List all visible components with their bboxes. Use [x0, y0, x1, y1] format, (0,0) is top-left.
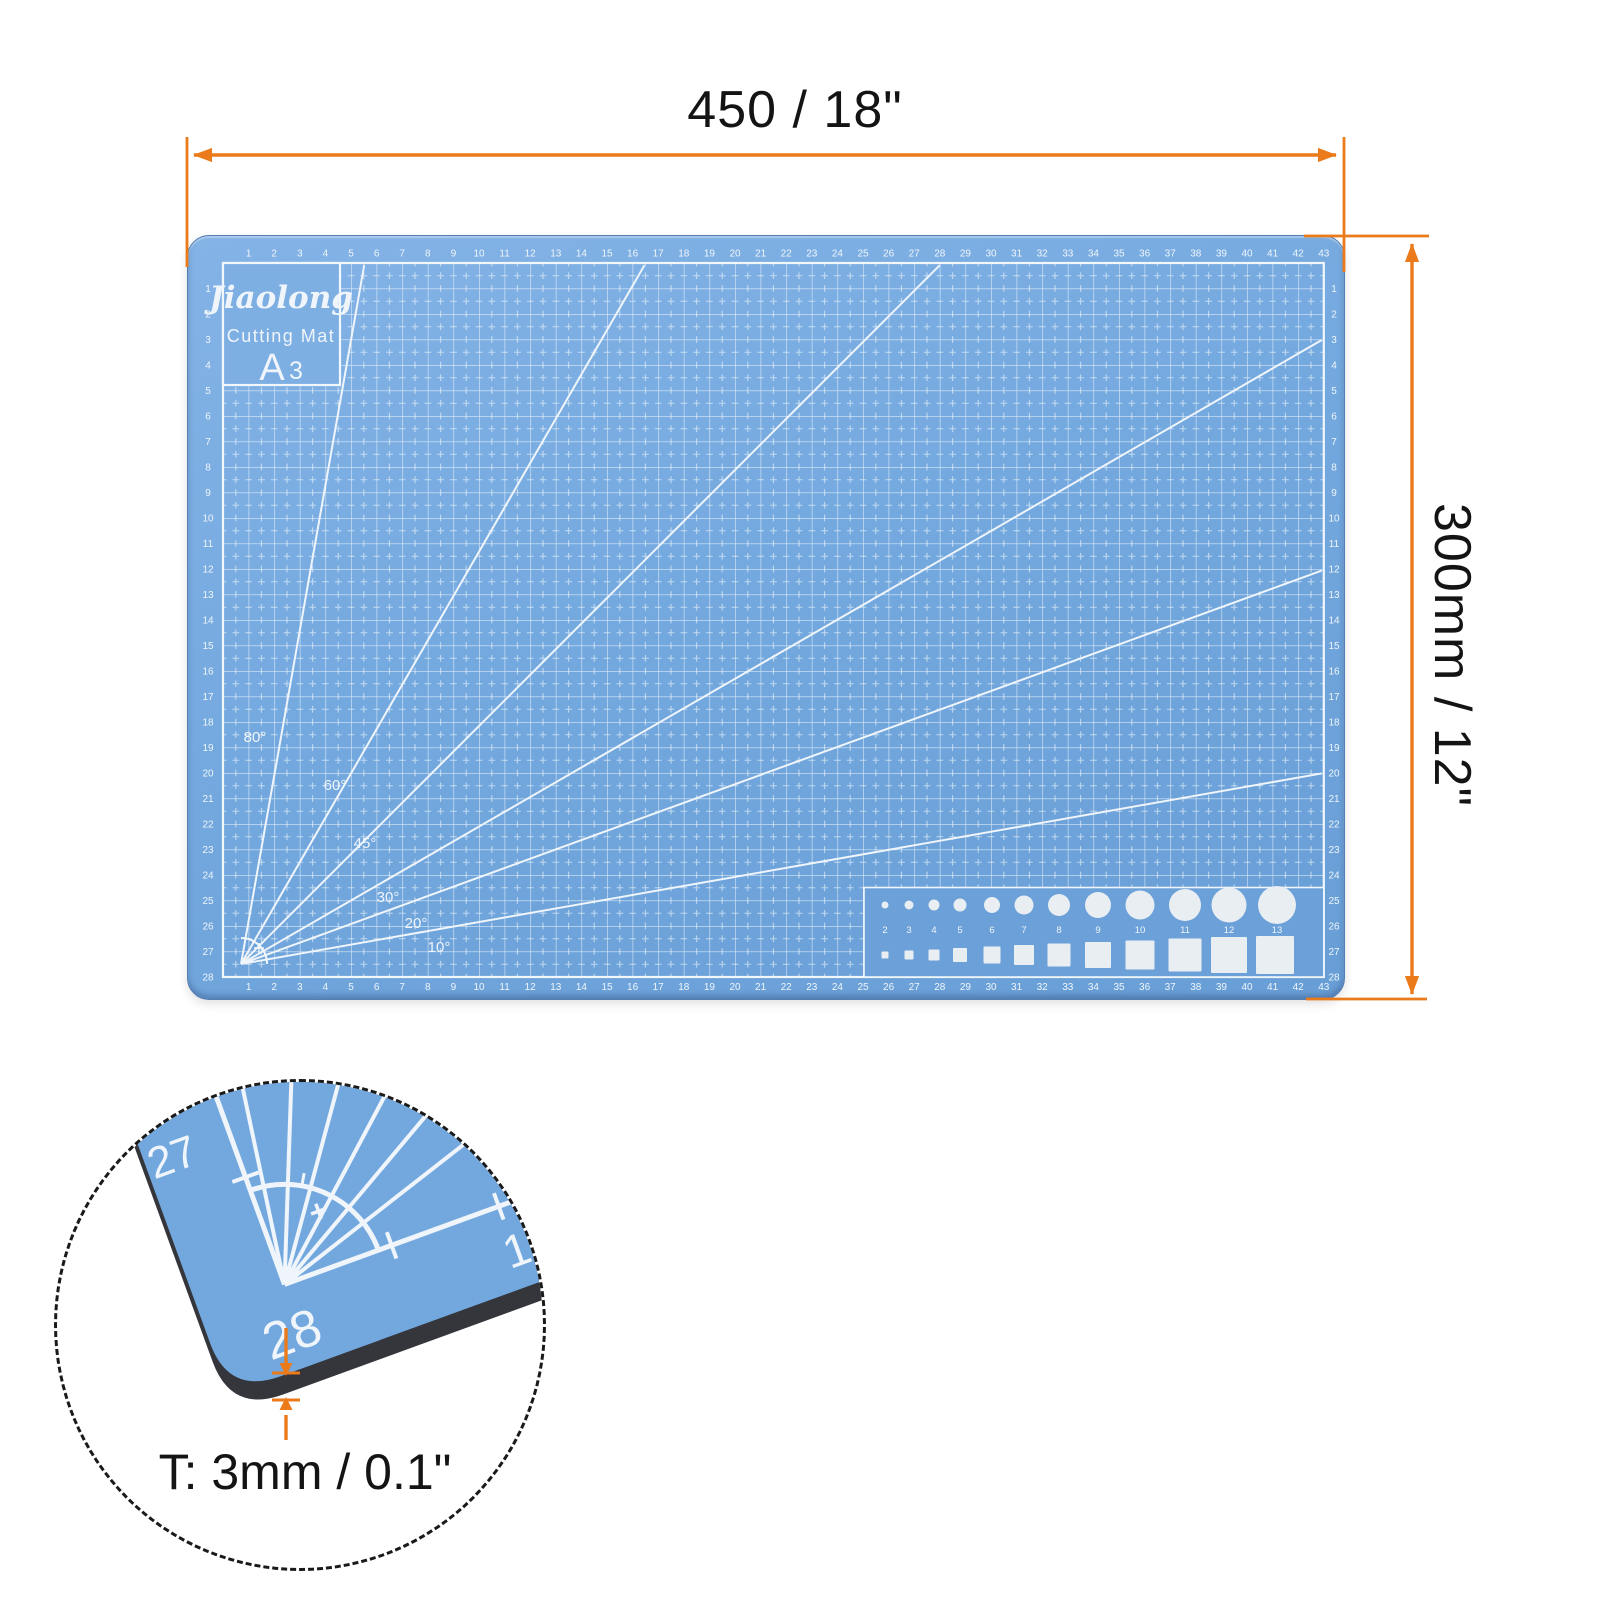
angle-label-30: 30° — [377, 889, 400, 906]
template-square-8 — [1048, 944, 1071, 967]
ruler-number-left: 6 — [205, 412, 211, 423]
left-ruler: 1234567891011121314151617181920212223242… — [202, 284, 214, 984]
ruler-number-top: 30 — [985, 249, 997, 260]
ruler-number-bottom: 5 — [348, 982, 354, 993]
detail-circle: 2627281 T: 3mm / 0.1" — [54, 1079, 546, 1571]
bottom-ruler: 1234567891011121314151617181920212223242… — [246, 982, 1330, 993]
ruler-number-bottom: 30 — [985, 982, 997, 993]
ruler-number-top: 4 — [323, 249, 329, 260]
template-square-2 — [882, 952, 889, 959]
ruler-number-left: 23 — [202, 845, 214, 856]
right-ruler: 1234567891011121314151617181920212223242… — [1328, 284, 1340, 984]
ruler-number-top: 24 — [832, 249, 844, 260]
template-square-6 — [984, 947, 1001, 964]
ruler-number-left: 12 — [202, 565, 214, 576]
ruler-number-bottom: 17 — [653, 982, 665, 993]
ruler-number-right: 19 — [1328, 743, 1340, 754]
ruler-number-bottom: 6 — [374, 982, 380, 993]
ruler-number-top: 15 — [601, 249, 613, 260]
ruler-number-left: 26 — [202, 922, 214, 933]
ruler-number-left: 13 — [202, 590, 214, 601]
ruler-number-bottom: 31 — [1011, 982, 1023, 993]
ruler-number-left: 14 — [202, 616, 214, 627]
product-name-text: Cutting Mat — [227, 326, 336, 346]
angle-label-45: 45° — [354, 835, 377, 852]
ruler-number-left: 10 — [202, 514, 214, 525]
ruler-number-right: 1 — [1331, 284, 1337, 295]
ruler-number-left: 3 — [205, 335, 211, 346]
template-number-7: 7 — [1021, 925, 1026, 936]
ruler-number-bottom: 10 — [473, 982, 485, 993]
ruler-number-top: 2 — [271, 249, 277, 260]
template-circle-6 — [984, 897, 1000, 913]
brand-text: Jiaolong — [204, 280, 353, 316]
ruler-number-bottom: 43 — [1318, 982, 1330, 993]
top-ruler: 1234567891011121314151617181920212223242… — [246, 249, 1330, 260]
ruler-number-right: 10 — [1328, 514, 1340, 525]
ruler-number-bottom: 22 — [781, 982, 793, 993]
ruler-number-bottom: 4 — [323, 982, 329, 993]
template-number-3: 3 — [906, 925, 911, 936]
ruler-number-top: 3 — [297, 249, 303, 260]
template-circle-3 — [905, 901, 914, 910]
ruler-number-top: 31 — [1011, 249, 1023, 260]
ruler-number-top: 43 — [1318, 249, 1330, 260]
ruler-number-left: 8 — [205, 463, 211, 474]
height-dimension-label: 300mm / 12" — [1422, 503, 1482, 807]
ruler-number-bottom: 7 — [399, 982, 405, 993]
width-dimension-label: 450 / 18" — [687, 80, 902, 140]
ruler-number-bottom: 42 — [1293, 982, 1305, 993]
ruler-number-bottom: 36 — [1139, 982, 1151, 993]
template-number-5: 5 — [957, 925, 962, 936]
ruler-number-right: 15 — [1328, 641, 1340, 652]
ruler-number-top: 36 — [1139, 249, 1151, 260]
ruler-number-right: 21 — [1328, 794, 1340, 805]
template-circle-5 — [954, 899, 967, 912]
ruler-number-right: 6 — [1331, 412, 1337, 423]
ruler-number-bottom: 33 — [1062, 982, 1074, 993]
ruler-number-bottom: 16 — [627, 982, 639, 993]
ruler-number-top: 38 — [1190, 249, 1202, 260]
ruler-number-top: 39 — [1216, 249, 1228, 260]
template-circle-4 — [929, 900, 940, 911]
size-letter-text: A — [259, 347, 285, 389]
ruler-number-top: 20 — [729, 249, 741, 260]
template-number-13: 13 — [1272, 925, 1283, 936]
template-square-4 — [929, 950, 940, 961]
ruler-number-top: 34 — [1088, 249, 1100, 260]
ruler-number-right: 8 — [1331, 463, 1337, 474]
ruler-number-right: 24 — [1328, 871, 1340, 882]
ruler-number-right: 17 — [1328, 692, 1340, 703]
template-square-10 — [1126, 941, 1155, 970]
thickness-label: T: 3mm / 0.1" — [159, 1443, 452, 1501]
ruler-number-top: 13 — [550, 249, 562, 260]
angle-label-60: 60° — [324, 777, 347, 794]
ruler-number-bottom: 21 — [755, 982, 767, 993]
ruler-number-top: 23 — [806, 249, 818, 260]
ruler-number-bottom: 34 — [1088, 982, 1100, 993]
ruler-number-left: 25 — [202, 896, 214, 907]
ruler-number-top: 27 — [909, 249, 921, 260]
ruler-number-bottom: 20 — [729, 982, 741, 993]
ruler-number-right: 18 — [1328, 718, 1340, 729]
ruler-number-bottom: 39 — [1216, 982, 1228, 993]
template-number-11: 11 — [1180, 925, 1190, 936]
template-square-7 — [1014, 945, 1034, 965]
ruler-number-bottom: 37 — [1165, 982, 1177, 993]
ruler-number-top: 1 — [246, 249, 252, 260]
ruler-number-bottom: 40 — [1241, 982, 1253, 993]
ruler-number-right: 7 — [1331, 437, 1337, 448]
angle-label-10: 10° — [428, 939, 451, 956]
ruler-number-right: 16 — [1328, 667, 1340, 678]
ruler-number-bottom: 9 — [451, 982, 457, 993]
ruler-number-right: 25 — [1328, 896, 1340, 907]
ruler-number-bottom: 38 — [1190, 982, 1202, 993]
ruler-number-right: 28 — [1328, 973, 1340, 984]
ruler-number-top: 11 — [499, 249, 510, 260]
logo-box: Jiaolong Cutting Mat A 3 — [204, 263, 353, 389]
template-number-2: 2 — [882, 925, 887, 936]
ruler-number-left: 20 — [202, 769, 214, 780]
ruler-number-top: 6 — [374, 249, 380, 260]
ruler-number-top: 9 — [451, 249, 457, 260]
ruler-number-top: 37 — [1165, 249, 1177, 260]
ruler-number-top: 42 — [1293, 249, 1305, 260]
ruler-number-bottom: 24 — [832, 982, 844, 993]
ruler-number-bottom: 18 — [678, 982, 690, 993]
angle-label-80: 80° — [244, 729, 267, 746]
ruler-number-bottom: 15 — [601, 982, 613, 993]
ruler-number-top: 14 — [576, 249, 588, 260]
template-circle-13 — [1258, 886, 1296, 924]
ruler-number-right: 4 — [1331, 361, 1337, 372]
ruler-number-left: 17 — [202, 692, 214, 703]
ruler-number-bottom: 27 — [909, 982, 921, 993]
ruler-number-top: 22 — [781, 249, 793, 260]
cutting-mat: 1234567891011121314151617181920212223242… — [187, 235, 1345, 1000]
ruler-number-bottom: 35 — [1113, 982, 1125, 993]
ruler-number-left: 19 — [202, 743, 214, 754]
ruler-number-bottom: 14 — [576, 982, 588, 993]
ruler-number-bottom: 19 — [704, 982, 716, 993]
ruler-number-top: 10 — [473, 249, 485, 260]
ruler-number-right: 23 — [1328, 845, 1340, 856]
template-number-6: 6 — [989, 925, 994, 936]
ruler-number-left: 7 — [205, 437, 211, 448]
ruler-number-right: 2 — [1331, 310, 1337, 321]
ruler-number-bottom: 26 — [883, 982, 895, 993]
ruler-number-top: 26 — [883, 249, 895, 260]
ruler-number-left: 16 — [202, 667, 214, 678]
ruler-number-top: 25 — [857, 249, 869, 260]
ruler-number-top: 28 — [934, 249, 946, 260]
ruler-number-bottom: 8 — [425, 982, 431, 993]
ruler-number-left: 9 — [205, 488, 211, 499]
ruler-number-left: 21 — [202, 794, 214, 805]
ruler-number-right: 3 — [1331, 335, 1337, 346]
ruler-number-left: 11 — [203, 539, 214, 550]
ruler-number-bottom: 12 — [525, 982, 537, 993]
ruler-number-bottom: 25 — [857, 982, 869, 993]
template-circle-10 — [1126, 891, 1155, 920]
ruler-number-right: 11 — [1329, 539, 1340, 550]
ruler-number-right: 14 — [1328, 616, 1340, 627]
template-circle-12 — [1212, 888, 1247, 923]
template-square-5 — [953, 948, 967, 962]
ruler-number-left: 15 — [202, 641, 214, 652]
ruler-number-left: 4 — [205, 361, 211, 372]
ruler-number-top: 17 — [653, 249, 665, 260]
template-number-8: 8 — [1056, 925, 1061, 936]
ruler-number-top: 32 — [1037, 249, 1049, 260]
template-number-12: 12 — [1224, 925, 1235, 936]
ruler-number-right: 22 — [1328, 820, 1340, 831]
ruler-number-top: 40 — [1241, 249, 1253, 260]
ruler-number-left: 27 — [202, 947, 214, 958]
ruler-number-bottom: 11 — [499, 982, 510, 993]
template-circle-9 — [1085, 892, 1111, 918]
ruler-number-bottom: 1 — [246, 982, 252, 993]
ruler-number-right: 9 — [1331, 488, 1337, 499]
mat-grid: 1234567891011121314151617181920212223242… — [188, 236, 1344, 999]
ruler-number-bottom: 32 — [1037, 982, 1049, 993]
ruler-number-right: 5 — [1331, 386, 1337, 397]
ruler-number-bottom: 28 — [934, 982, 946, 993]
ruler-number-bottom: 3 — [297, 982, 303, 993]
ruler-number-top: 18 — [678, 249, 690, 260]
template-square-9 — [1085, 942, 1111, 968]
ruler-number-top: 7 — [399, 249, 405, 260]
ruler-number-bottom: 23 — [806, 982, 818, 993]
ruler-number-left: 22 — [202, 820, 214, 831]
template-square-12 — [1211, 937, 1247, 973]
ruler-number-top: 19 — [704, 249, 716, 260]
template-number-4: 4 — [931, 925, 936, 936]
ruler-number-top: 41 — [1267, 249, 1279, 260]
ruler-number-top: 8 — [425, 249, 431, 260]
template-square-11 — [1169, 939, 1202, 972]
template-square-3 — [905, 951, 914, 960]
ruler-number-top: 29 — [960, 249, 972, 260]
ruler-number-left: 5 — [205, 386, 211, 397]
ruler-number-right: 12 — [1328, 565, 1340, 576]
template-circle-8 — [1048, 894, 1070, 916]
ruler-number-top: 35 — [1113, 249, 1125, 260]
size-digit-text: 3 — [289, 357, 303, 385]
ruler-number-right: 27 — [1328, 947, 1340, 958]
ruler-number-bottom: 2 — [271, 982, 277, 993]
ruler-number-bottom: 29 — [960, 982, 972, 993]
ruler-number-left: 24 — [202, 871, 214, 882]
template-number-10: 10 — [1135, 925, 1146, 936]
ruler-number-top: 16 — [627, 249, 639, 260]
template-circle-11 — [1169, 889, 1201, 921]
ruler-number-right: 20 — [1328, 769, 1340, 780]
ruler-number-right: 26 — [1328, 922, 1340, 933]
template-circle-2 — [882, 902, 889, 909]
ruler-number-top: 5 — [348, 249, 354, 260]
ruler-number-right: 13 — [1328, 590, 1340, 601]
angle-label-20: 20° — [405, 915, 428, 932]
ruler-number-left: 18 — [202, 718, 214, 729]
ruler-number-bottom: 13 — [550, 982, 562, 993]
ruler-number-top: 21 — [755, 249, 767, 260]
template-circle-7 — [1015, 896, 1034, 915]
ruler-number-bottom: 41 — [1267, 982, 1279, 993]
ruler-number-left: 28 — [202, 973, 214, 984]
template-number-9: 9 — [1095, 925, 1100, 936]
ruler-number-top: 12 — [525, 249, 537, 260]
ruler-number-top: 33 — [1062, 249, 1074, 260]
template-square-13 — [1256, 936, 1294, 974]
